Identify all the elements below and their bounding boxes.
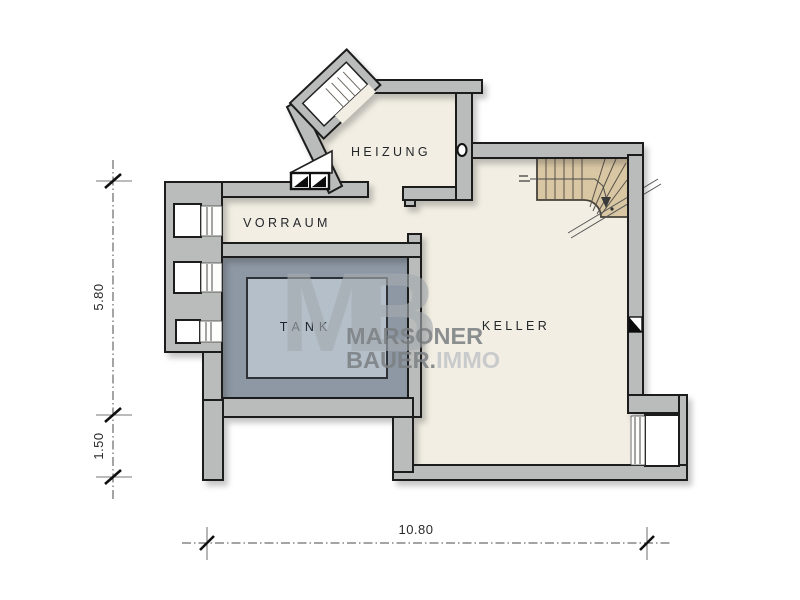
light-well — [176, 320, 200, 343]
watermark-line1: MARSONER — [346, 323, 483, 349]
wall-segment — [203, 398, 413, 417]
window — [631, 416, 645, 465]
dimension-label-5-80: 5.80 — [91, 283, 106, 310]
floorplan-svg: HEIZUNG VORRAUM TANK KELLER 5.80 1.50 10… — [0, 0, 800, 600]
dimension-left: 5.80 1.50 — [91, 160, 132, 500]
wall-segment — [203, 352, 222, 400]
watermark-line2: BAUER.IMMO — [346, 347, 500, 373]
floor-plan-page: HEIZUNG VORRAUM TANK KELLER 5.80 1.50 10… — [0, 0, 800, 600]
stair-dot — [610, 207, 613, 210]
wall-segment — [393, 417, 413, 472]
watermark-line2-bold: BAUER. — [346, 347, 436, 373]
wall-segment — [456, 80, 472, 200]
light-well — [174, 204, 201, 237]
room-label-heizung: HEIZUNG — [351, 145, 431, 159]
room-label-keller: KELLER — [482, 319, 550, 333]
wall-segment — [628, 155, 643, 398]
light-wells-left — [174, 204, 222, 343]
drain-circle-symbol — [458, 144, 467, 156]
watermark-line2-light: IMMO — [436, 347, 500, 373]
wall-segment — [203, 398, 223, 480]
dimension-bottom: 10.80 — [182, 522, 672, 560]
dimension-label-10-80: 10.80 — [398, 522, 433, 537]
light-well — [645, 415, 679, 466]
vent-symbol-right-wall — [629, 317, 642, 332]
wall-segment — [472, 143, 643, 158]
wall-segment — [370, 80, 482, 93]
light-well — [174, 262, 201, 293]
room-label-vorraum: VORRAUM — [243, 216, 331, 230]
wall-stub — [405, 200, 415, 206]
dimension-label-1-50: 1.50 — [91, 432, 106, 459]
light-well-bottom-right — [631, 415, 679, 466]
wall-segment — [393, 465, 687, 480]
